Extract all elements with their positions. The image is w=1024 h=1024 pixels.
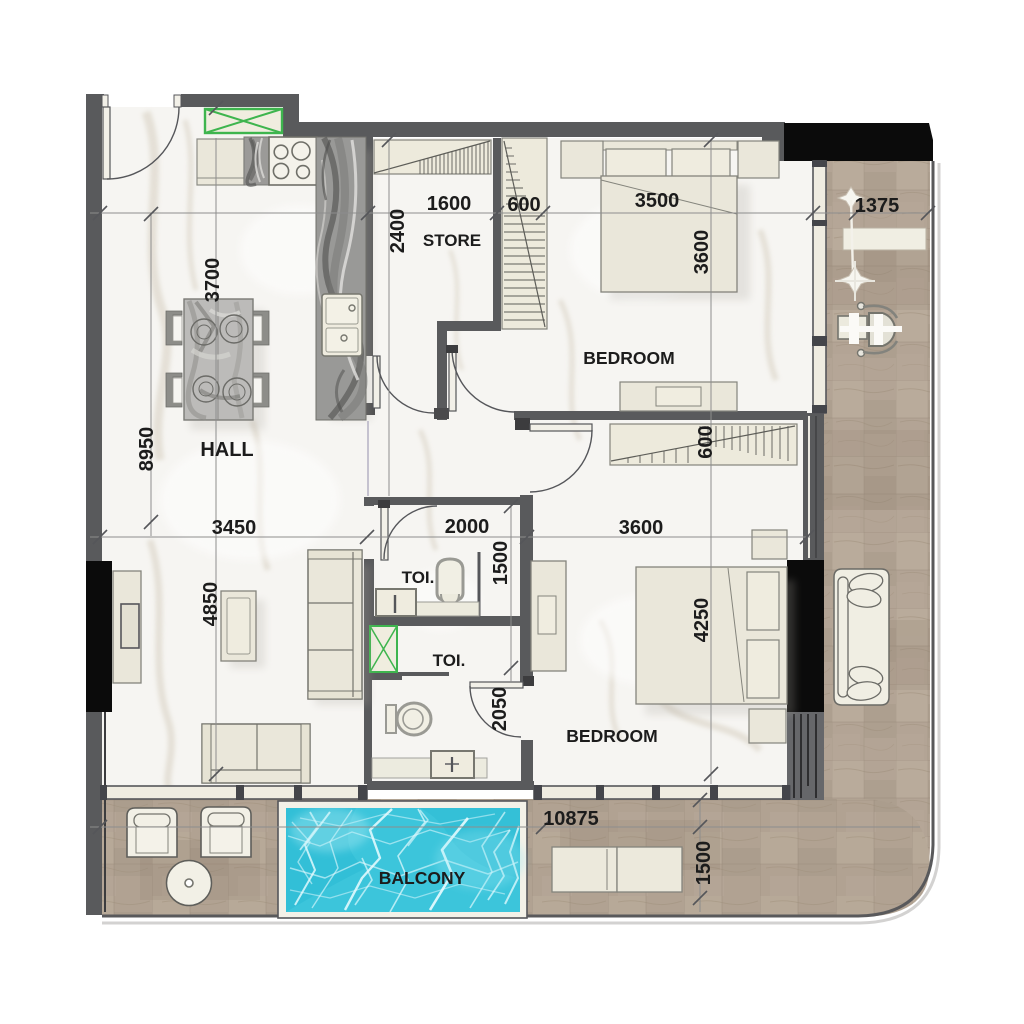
svg-text:BEDROOM: BEDROOM <box>583 348 674 368</box>
svg-text:HALL: HALL <box>200 439 253 461</box>
svg-text:8950: 8950 <box>136 427 158 472</box>
svg-text:1375: 1375 <box>855 195 900 217</box>
svg-text:2000: 2000 <box>445 516 490 538</box>
svg-text:BEDROOM: BEDROOM <box>566 726 657 746</box>
svg-text:1500: 1500 <box>490 541 512 586</box>
svg-text:4250: 4250 <box>691 598 713 643</box>
svg-text:2050: 2050 <box>489 687 511 732</box>
svg-text:3600: 3600 <box>619 517 664 539</box>
svg-text:4850: 4850 <box>200 582 222 627</box>
svg-text:TOI.: TOI. <box>402 568 435 587</box>
svg-text:STORE: STORE <box>423 231 481 250</box>
svg-text:10875: 10875 <box>543 808 599 830</box>
svg-text:3600: 3600 <box>691 230 713 275</box>
svg-text:600: 600 <box>695 425 717 458</box>
svg-text:3700: 3700 <box>202 258 224 303</box>
svg-text:1500: 1500 <box>693 841 715 886</box>
svg-text:3450: 3450 <box>212 517 257 539</box>
svg-text:600: 600 <box>507 194 540 216</box>
svg-text:TOI.: TOI. <box>433 651 466 670</box>
svg-text:1600: 1600 <box>427 193 472 215</box>
svg-text:3500: 3500 <box>635 190 680 212</box>
svg-text:2400: 2400 <box>387 209 409 254</box>
svg-text:BALCONY: BALCONY <box>379 868 466 888</box>
